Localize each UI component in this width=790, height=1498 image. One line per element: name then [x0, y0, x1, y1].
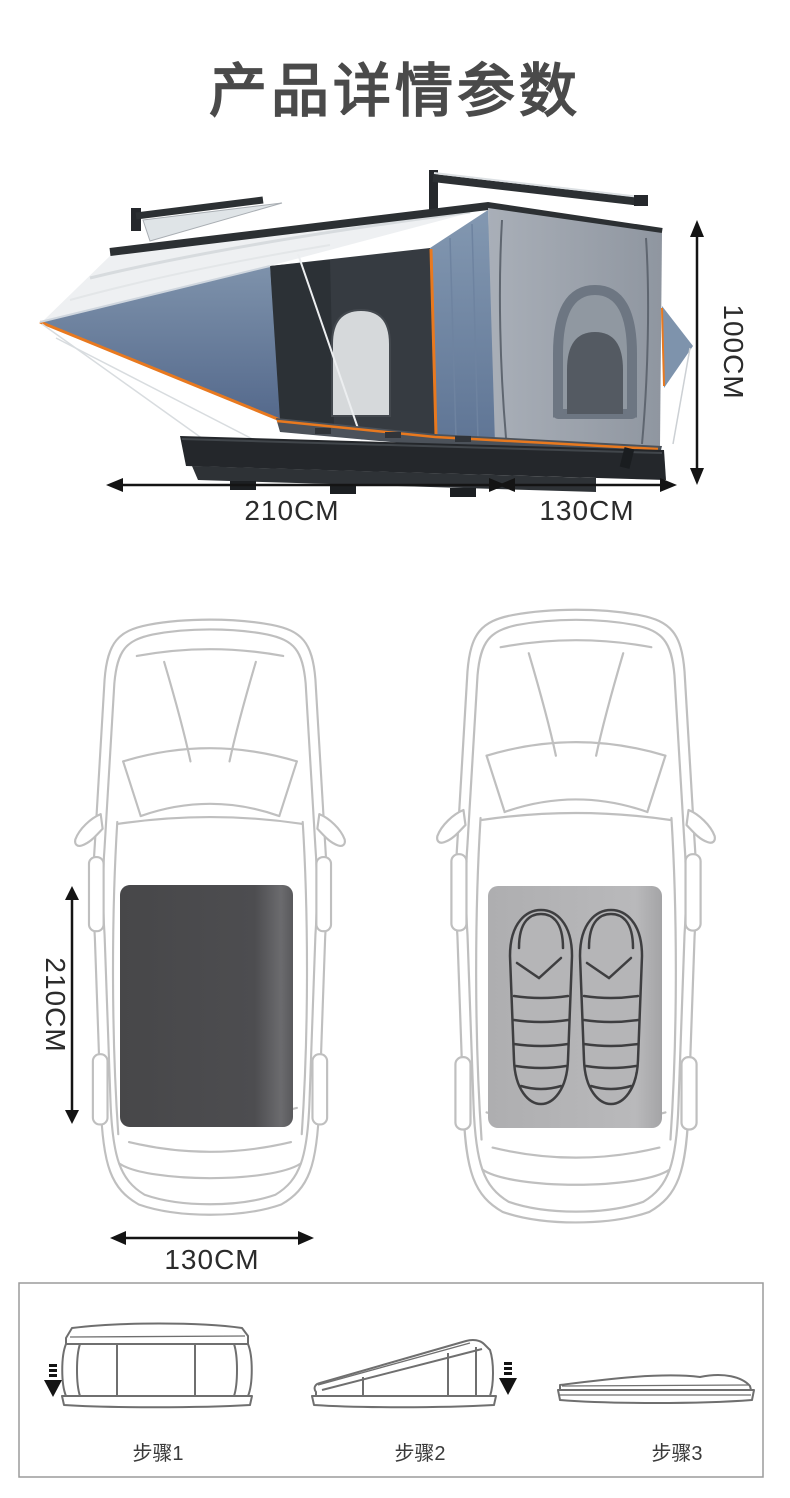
dimension-label-length: 210CM [244, 495, 339, 526]
roof-dimension-label-width: 130CM [164, 1244, 259, 1275]
sleeping-bag-icon [510, 910, 572, 1104]
roof-dimension-length: 210CM [40, 886, 79, 1124]
tent-photo-figure: 210CM 130CM 100CM [30, 148, 750, 548]
step2-label: 步骤2 [394, 1442, 445, 1465]
tent-end-panel [488, 208, 662, 458]
step3-label: 步骤3 [651, 1442, 702, 1465]
dimension-length: 210CM [106, 478, 506, 526]
roof-dimension-width: 130CM [110, 1231, 314, 1275]
door-window [332, 310, 390, 416]
door-panel [430, 210, 495, 444]
tent-footprint-rect [120, 885, 293, 1127]
rear-flap [662, 306, 693, 444]
folding-steps-figure: 步骤1 步骤2 步骤3 [0, 1278, 790, 1498]
page-title: 产品详情参数 [0, 44, 790, 128]
dimension-side-width: 130CM [498, 478, 677, 526]
product-detail-page: 产品详情参数 [0, 0, 790, 1498]
dimension-label-height: 100CM [718, 304, 749, 399]
dimension-label-side-width: 130CM [539, 495, 634, 526]
roof-dimension-label-length: 210CM [40, 957, 71, 1052]
step1-label: 步骤1 [132, 1442, 183, 1465]
dimension-height: 100CM [690, 220, 749, 485]
roof-layout-figure: 210CM 130CM [0, 595, 790, 1275]
sleeping-bag-icon [580, 910, 642, 1104]
tent-door-opening [270, 248, 435, 440]
